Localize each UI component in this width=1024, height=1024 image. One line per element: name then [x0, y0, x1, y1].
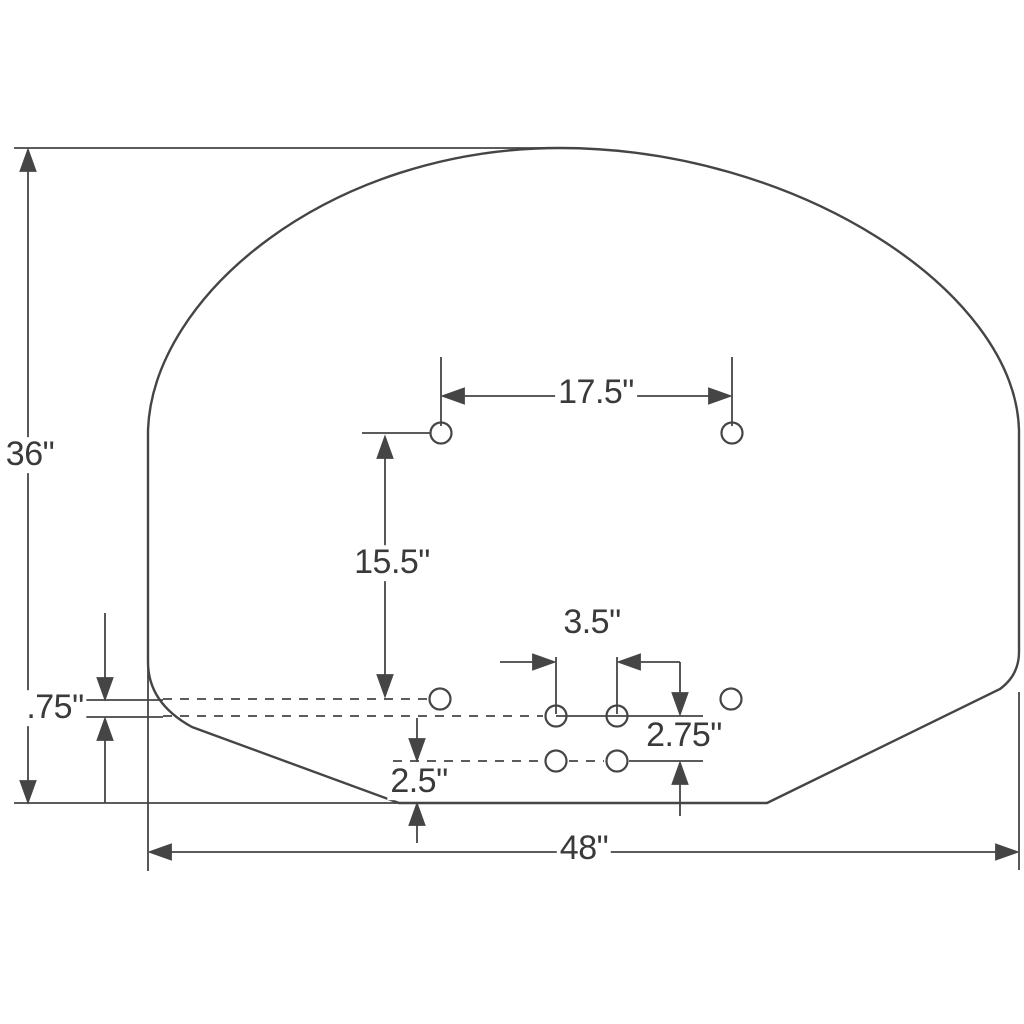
arrowhead-down — [21, 781, 36, 802]
mounting-hole-row1-left — [430, 689, 451, 710]
mounting-hole-row3-left — [546, 751, 567, 772]
arrowhead-down — [98, 678, 113, 699]
arrowhead-down — [378, 675, 393, 696]
arrowhead-left — [443, 389, 464, 404]
arrowhead-down — [673, 693, 688, 714]
backboard-outline — [148, 148, 1019, 803]
arrowhead-left — [619, 655, 640, 670]
arrowhead-right — [533, 655, 554, 670]
arrowhead-up — [673, 763, 688, 784]
arrowhead-left — [150, 845, 171, 860]
arrowhead-up — [378, 437, 393, 458]
mounting-hole-row1-right — [721, 689, 742, 710]
dim-label-vertical-spacing: 15.5" — [351, 545, 433, 581]
dim-label-bottom-gap: 2.5" — [387, 764, 450, 800]
arrowhead-right — [996, 845, 1017, 860]
dim-label-height: 36" — [3, 437, 57, 473]
arrowhead-right — [709, 389, 730, 404]
dimension-drawing: 36" 17.5" 15.5" 3.5" .75" 2.75" 2.5" 48" — [0, 0, 1024, 1024]
dim-label-width: 48" — [557, 831, 611, 867]
mounting-hole-row3-right — [607, 751, 628, 772]
dim-label-row-gap-mid: 2.75" — [643, 718, 725, 754]
arrowhead-up — [98, 719, 113, 740]
backboard-diagram-svg — [0, 0, 1024, 1024]
arrowhead-up — [21, 150, 36, 171]
arrowhead-up — [410, 804, 425, 825]
dim-label-row-gap-small: .75" — [23, 690, 86, 726]
arrowhead-down — [410, 739, 425, 760]
dim-label-lower-spacing: 3.5" — [560, 605, 623, 641]
dim-label-top-hole-spacing: 17.5" — [555, 375, 637, 411]
